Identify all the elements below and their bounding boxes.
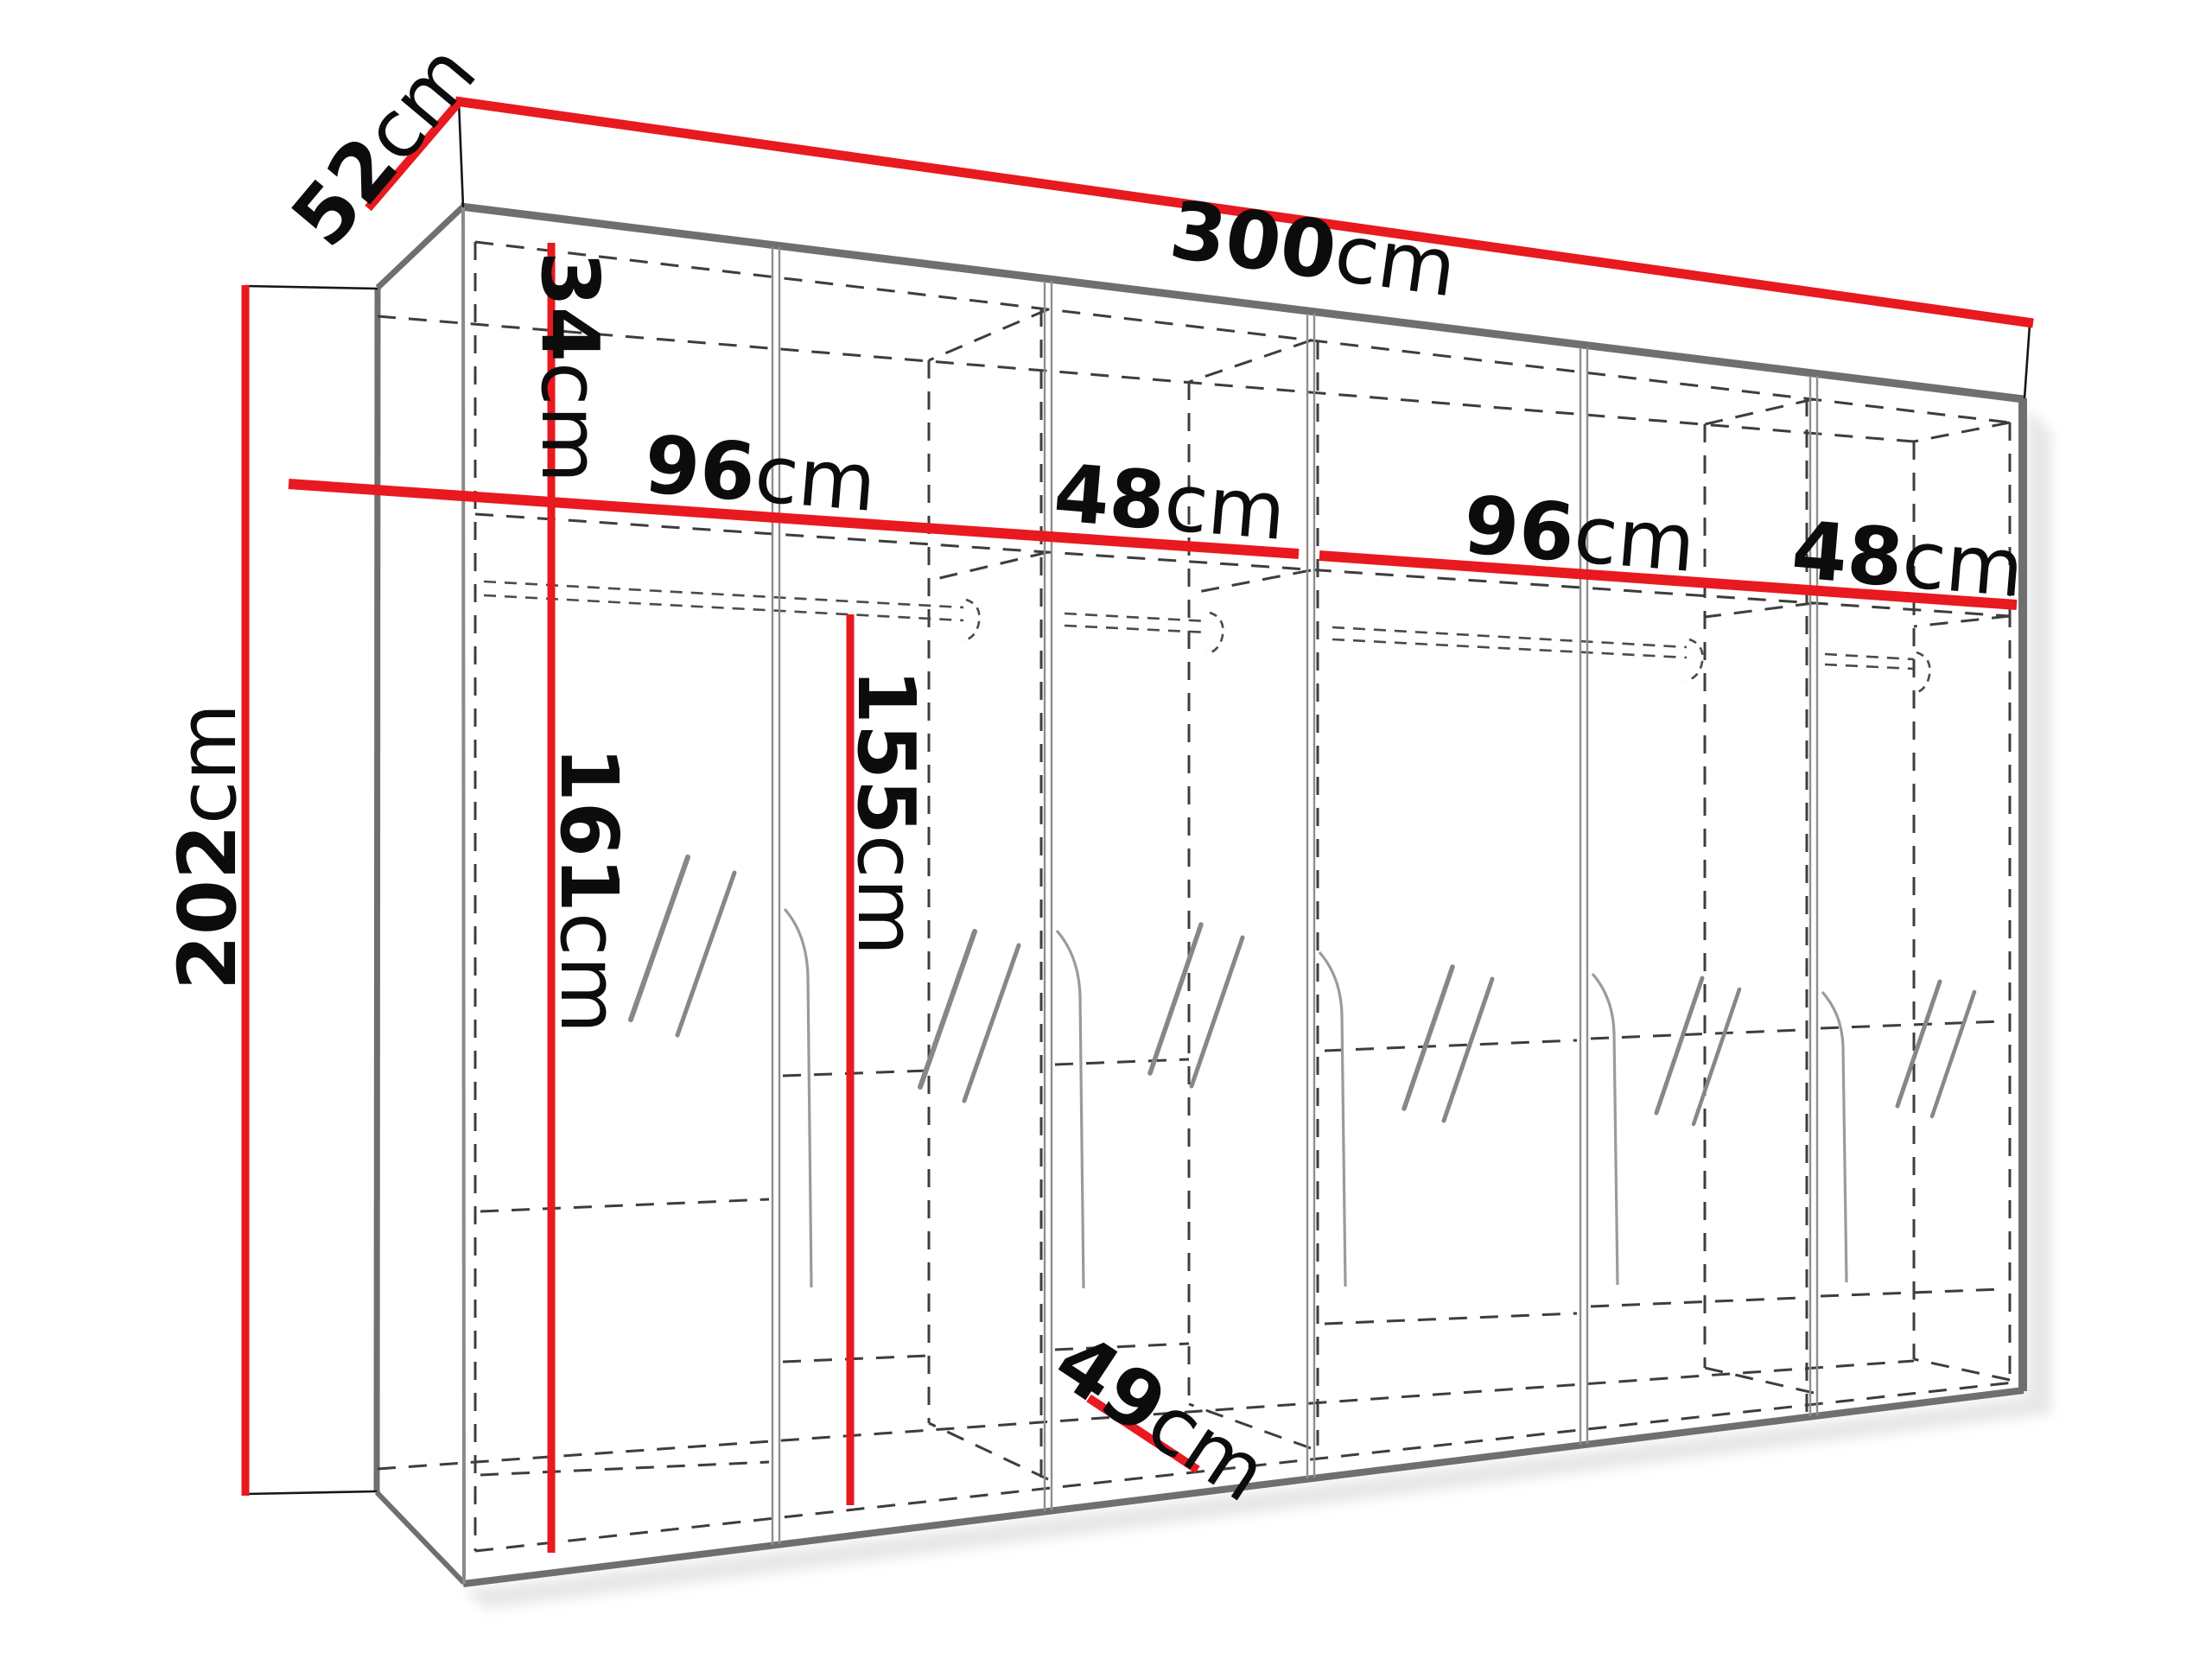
extension-line (2024, 325, 2030, 398)
dim-left-narrow-label: 48cm (1051, 446, 1289, 557)
dim-height-label: 202cm (162, 703, 254, 990)
dim-right-narrow-label: 48cm (1789, 503, 2027, 614)
dim-top-shelf-label: 34cm (524, 251, 617, 483)
wardrobe-dimension-diagram: 300cm 52cm 202cm 34cm 96cm 48cm 96cm 48c… (0, 0, 2212, 1659)
dim-left-hanging-label: 161cm (543, 747, 636, 1033)
side-left-edge (377, 288, 378, 1492)
cabinet-side-face (378, 207, 464, 1583)
extension-line (245, 1491, 377, 1494)
extension-line (245, 286, 378, 289)
dim-right-hanging-label: 155cm (841, 669, 933, 956)
dim-left-wide-label: 96cm (641, 417, 880, 529)
diagram-canvas: 300cm 52cm 202cm 34cm 96cm 48cm 96cm 48c… (0, 0, 2212, 1659)
dim-right-wide-label: 96cm (1460, 478, 1699, 589)
dim-width-label: 300cm (1165, 183, 1462, 315)
front-left-edge (463, 207, 464, 1584)
cabinet-front-face (462, 207, 2024, 1583)
